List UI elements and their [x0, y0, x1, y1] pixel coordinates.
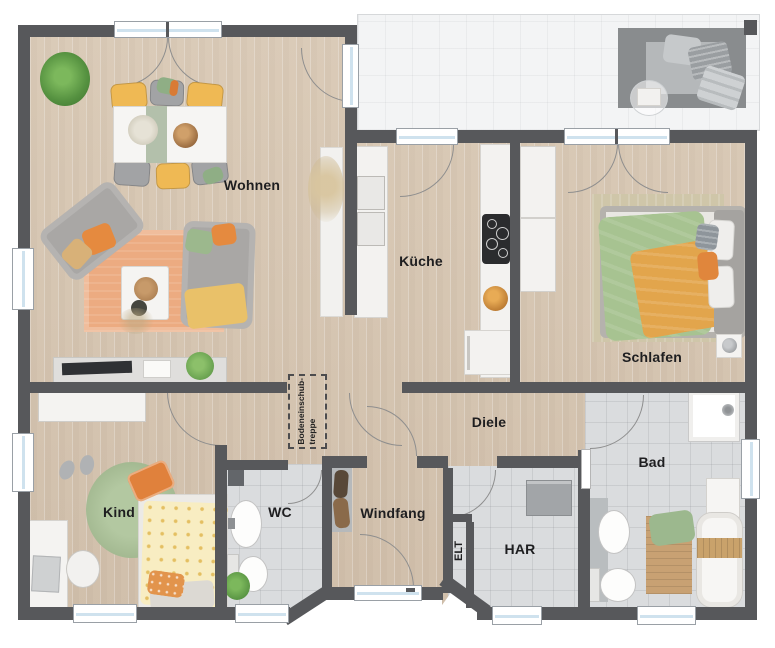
kitchen-door: [396, 128, 458, 145]
kitchen-appliance: [357, 176, 385, 210]
wall: [30, 382, 287, 393]
cooktop-burner: [486, 238, 498, 250]
wall: [417, 456, 448, 468]
wall: [745, 143, 757, 620]
door-handle: [406, 588, 415, 592]
room-label-kueche: Küche: [399, 253, 443, 269]
laptop: [31, 555, 61, 592]
sink: [598, 510, 630, 554]
serving-tray: [637, 88, 661, 106]
kitchen-appliance: [357, 212, 385, 246]
room-label-schlafen: Schlafen: [622, 349, 682, 365]
dried-plant: [118, 308, 154, 334]
wardrobe: [520, 146, 556, 292]
toilet: [600, 568, 636, 602]
sofa-pillow: [184, 228, 215, 255]
bathtub: [696, 512, 743, 608]
cooktop-burner: [498, 248, 508, 258]
window: [235, 604, 289, 623]
decor-bowl: [134, 277, 158, 301]
tv: [62, 361, 132, 375]
room-label-wohnen: Wohnen: [224, 177, 280, 193]
bed-pillow: [147, 570, 186, 599]
room-label-kind: Kind: [103, 504, 135, 520]
window: [12, 248, 34, 310]
terrace-pillar: [744, 20, 757, 35]
door-mullion: [615, 129, 618, 144]
kitchen-counter: [464, 330, 512, 375]
washing-machine: [526, 480, 572, 516]
shower-head: [722, 404, 734, 416]
wall: [510, 143, 520, 393]
wardrobe-divider: [520, 217, 556, 219]
sofa-blanket: [184, 282, 248, 329]
wall: [443, 468, 453, 593]
plant: [186, 352, 214, 380]
decor-bowl: [173, 123, 198, 148]
wall: [215, 460, 288, 470]
lamp: [722, 338, 737, 353]
faucet: [228, 518, 235, 529]
window: [637, 606, 696, 625]
bed-pillow: [694, 223, 719, 252]
room-label-har: HAR: [505, 541, 536, 557]
wall: [497, 456, 590, 468]
dining-chair: [156, 162, 191, 189]
bathtub-caddy: [697, 538, 742, 558]
wall: [322, 456, 367, 468]
floor-plan: Bodeneinschub- treppe Wohnen Küche Schla…: [0, 0, 775, 648]
room-label-wc: WC: [268, 504, 292, 520]
wall: [445, 514, 472, 522]
room-label-bad: Bad: [638, 454, 665, 470]
wall: [402, 382, 745, 393]
wall: [322, 458, 332, 598]
window: [741, 439, 760, 499]
plant: [224, 572, 250, 600]
cooktop-burner: [487, 219, 497, 229]
sofa-pillow: [211, 222, 238, 246]
attic-ladder-box: Bodeneinschub- treppe: [288, 374, 327, 449]
wall: [466, 522, 474, 608]
terrace-door: [342, 44, 359, 108]
door-mullion: [166, 22, 169, 37]
door-leaf: [581, 449, 591, 489]
room-label-elt: ELT: [453, 541, 465, 561]
room-label-windfang: Windfang: [360, 505, 425, 521]
wall: [420, 587, 443, 600]
bed-pillow: [697, 251, 719, 281]
cabinet-handle: [467, 336, 470, 370]
window: [12, 433, 34, 492]
decor-books: [143, 360, 171, 378]
dried-plant: [308, 156, 344, 222]
cooktop-burner: [496, 227, 509, 240]
window: [492, 606, 542, 625]
wardrobe: [38, 388, 146, 422]
desk-chair: [66, 550, 100, 588]
shower: [688, 390, 740, 442]
window: [73, 604, 137, 623]
room-label-diele: Diele: [472, 414, 506, 430]
flower-vase: [128, 115, 158, 145]
towel: [648, 509, 696, 547]
coat: [332, 497, 350, 528]
wall: [18, 25, 30, 620]
plant: [40, 52, 90, 106]
attic-ladder-label: Bodeneinschub- treppe: [296, 378, 318, 445]
coat: [333, 470, 349, 499]
fruit-bowl: [483, 286, 508, 311]
